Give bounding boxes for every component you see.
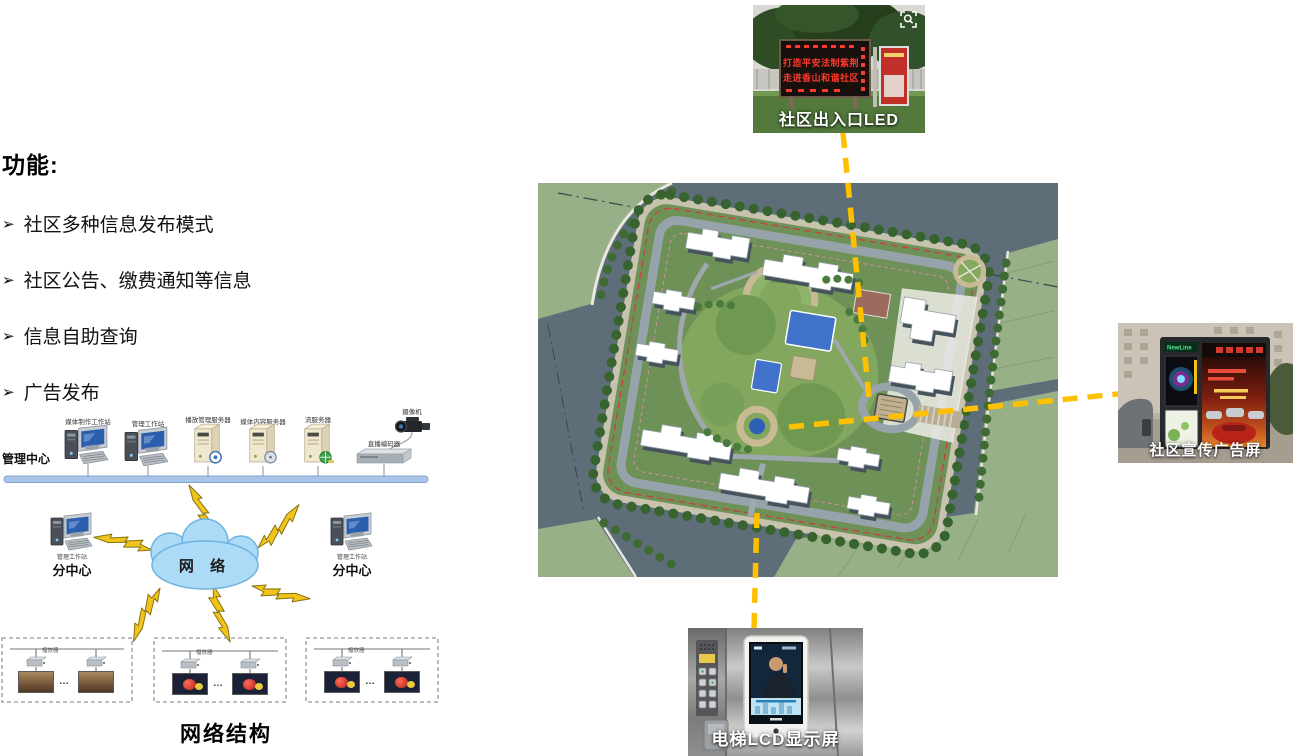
ellipsis: … (213, 678, 223, 689)
site-plan-map (538, 183, 1058, 577)
network-structure-diagram: 网 络 媒体制作工作站 管理工作站 播放管理服务器 媒体内容服务器 流服务器 (0, 400, 450, 720)
subcenter-workstation-icon (330, 512, 374, 552)
network-cloud: 网 络 (151, 519, 258, 589)
player-icon (25, 656, 47, 668)
player-label: 播放器 (42, 646, 59, 654)
elevator-control-panel (696, 640, 718, 716)
led-text-line1: 打造平安法制紫荆 (783, 57, 859, 68)
workstation-icon (124, 426, 170, 468)
ellipsis: … (365, 676, 375, 687)
display-screen (18, 671, 54, 693)
feature-item-label: 社区公告、缴费通知等信息 (24, 266, 252, 293)
feature-item: ➢ 社区公告、缴费通知等信息 (2, 266, 462, 293)
feature-item: ➢ 信息自助查询 (2, 322, 462, 349)
photo-caption-entrance-led: 社区出入口LED (753, 106, 925, 130)
server-icon (300, 422, 334, 466)
arrow-bullet-icon: ➢ (2, 383, 15, 401)
magnifier-icon[interactable] (900, 11, 917, 28)
player-label: 播放器 (348, 646, 365, 654)
encoder-label: 直播编码器 (339, 438, 429, 448)
feature-item: ➢ 社区多种信息发布模式 (2, 210, 462, 237)
arrow-bullet-icon: ➢ (2, 271, 15, 289)
photo-caption-ad-screen: 社区宣传广告屏 (1118, 439, 1293, 460)
player-icon (239, 658, 261, 670)
player-icon (391, 656, 413, 668)
camera-icon (392, 414, 434, 438)
network-bus-line (4, 476, 428, 483)
server-icon (245, 422, 279, 466)
player-icon (331, 656, 353, 668)
ad-kiosk: NewLine (1160, 337, 1270, 449)
community-site-plan (538, 183, 1058, 577)
display-screen (172, 673, 208, 695)
encoder-icon (352, 448, 414, 466)
feature-list: 功能: ➢ 社区多种信息发布模式 ➢ 社区公告、缴费通知等信息 ➢ 信息自助查询… (2, 146, 462, 434)
elevator-lcd-screen (744, 636, 808, 738)
photo-elevator-lcd: 电梯LCD显示屏 (688, 628, 863, 756)
subcenter-workstation-icon (50, 512, 94, 552)
site-block (589, 190, 994, 559)
subcenter-label: 分中心 (312, 560, 392, 579)
player-group-wiring (10, 649, 430, 673)
subcenter-label: 分中心 (32, 560, 112, 579)
slide: 功能: ➢ 社区多种信息发布模式 ➢ 社区公告、缴费通知等信息 ➢ 信息自助查询… (0, 0, 1300, 756)
player-icon (85, 656, 107, 668)
feature-item-label: 信息自助查询 (24, 322, 138, 349)
display-screen (78, 671, 114, 693)
ellipsis: … (59, 676, 69, 687)
kiosk-brand-label: NewLine (1167, 346, 1192, 352)
player-label: 播放器 (196, 648, 213, 656)
page-title: 功能: (2, 146, 462, 180)
arrow-bullet-icon: ➢ (2, 327, 15, 345)
player-group-boxes (2, 638, 438, 702)
led-text-line2: 走进香山和谐社区 (782, 72, 859, 83)
arrow-bullet-icon: ➢ (2, 215, 15, 233)
photo-entrance-led: 打造平安法制紫荆 走进香山和谐社区 社区出入口LED (753, 5, 925, 133)
diagram-title: 网络结构 (0, 718, 452, 748)
feature-item-label: 社区多种信息发布模式 (24, 210, 214, 237)
workstation-icon (64, 424, 110, 466)
photo-ad-screen: NewLine (1118, 323, 1293, 463)
display-screen (384, 671, 420, 693)
led-board (780, 40, 870, 97)
player-icon (179, 658, 201, 670)
management-center-label: 管理中心 (2, 450, 50, 467)
photo-caption-elevator-lcd: 电梯LCD显示屏 (688, 725, 863, 750)
display-screen (232, 673, 268, 695)
cloud-label: 网 络 (179, 557, 231, 575)
display-screen (324, 671, 360, 693)
server-icon (190, 422, 224, 466)
